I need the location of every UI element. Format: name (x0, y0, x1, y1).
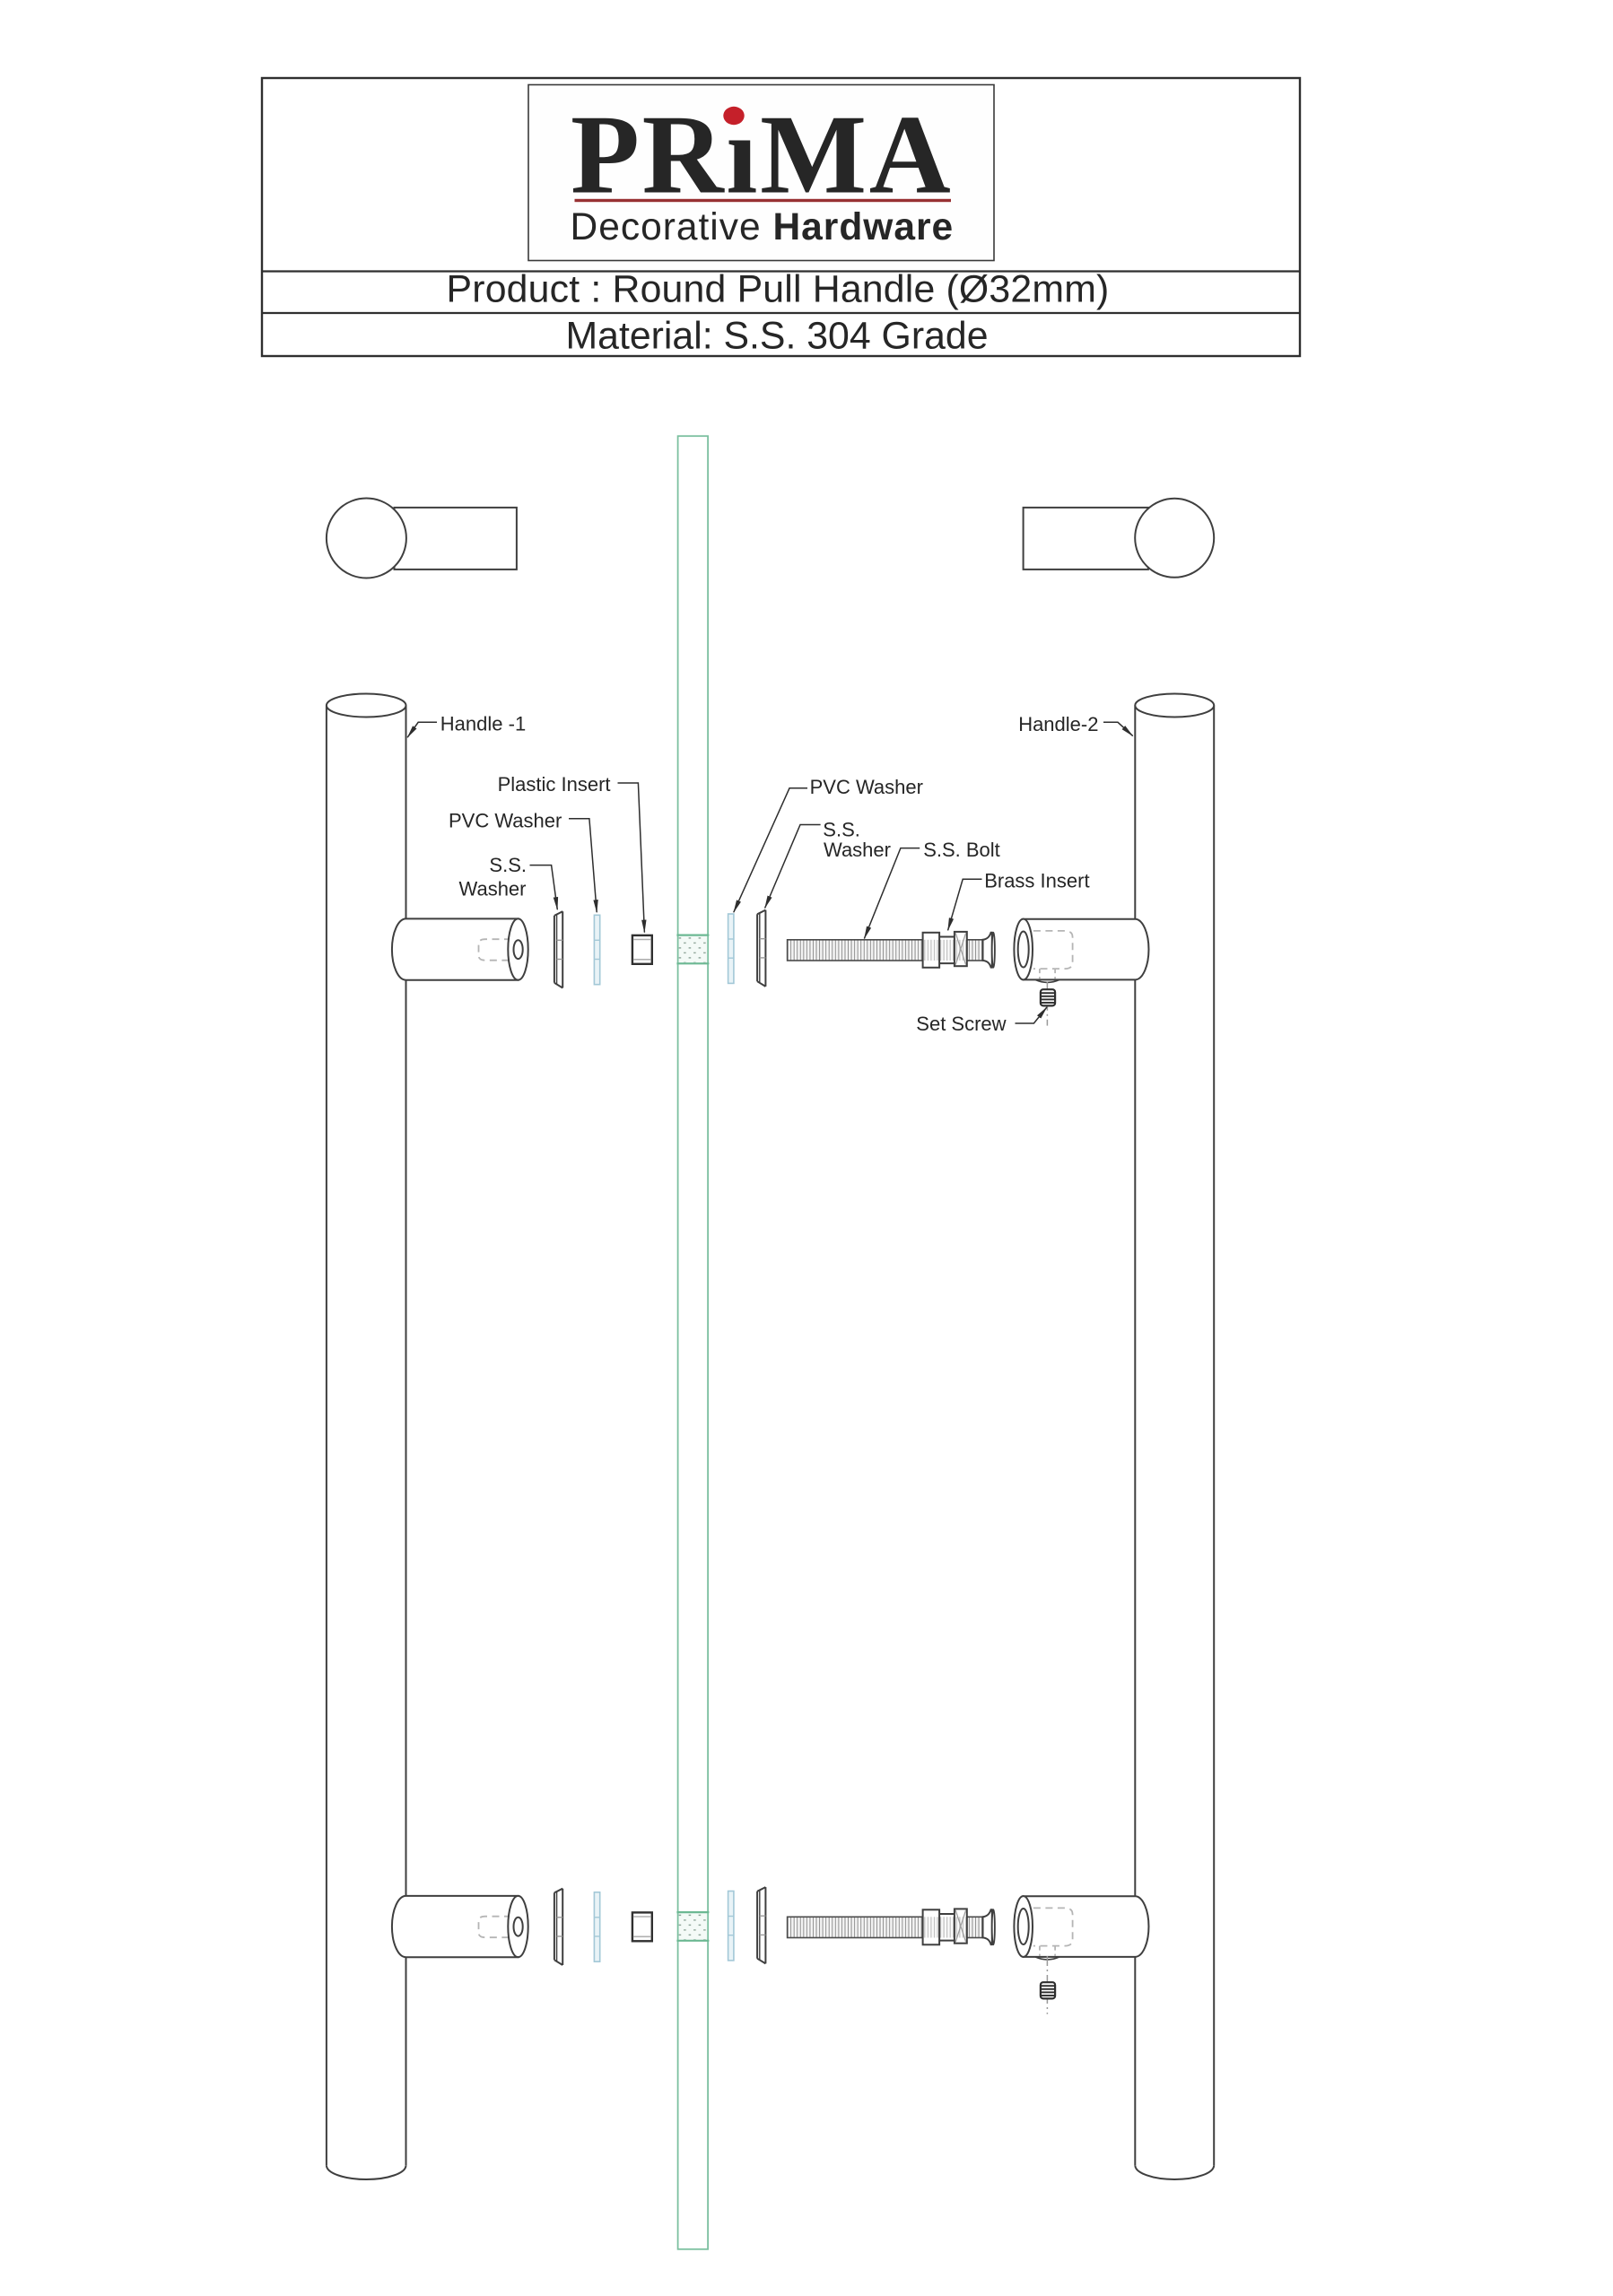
svg-text:S.S.: S.S. (823, 818, 860, 840)
svg-text:Decorative Hardware: Decorative Hardware (571, 206, 955, 248)
svg-text:Washer: Washer (459, 878, 527, 900)
svg-text:Brass Insert: Brass Insert (984, 870, 1089, 892)
svg-text:Product : Round Pull Handle (Ø: Product : Round Pull Handle (Ø32mm) (447, 268, 1110, 311)
svg-text:Handle-2: Handle-2 (1018, 713, 1098, 735)
svg-text:Material: S.S. 304 Grade: Material: S.S. 304 Grade (566, 315, 989, 358)
svg-text:PVC Washer: PVC Washer (449, 809, 562, 831)
svg-text:S.S.: S.S. (489, 854, 527, 876)
svg-text:PVC Washer: PVC Washer (810, 776, 923, 798)
svg-text:Handle -1: Handle -1 (440, 713, 526, 735)
svg-text:S.S. Bolt: S.S. Bolt (923, 839, 1000, 861)
svg-text:Set Screw: Set Screw (916, 1013, 1006, 1035)
svg-text:Plastic Insert: Plastic Insert (498, 773, 611, 796)
svg-text:Washer: Washer (824, 839, 891, 861)
svg-text:PRıMA: PRıMA (571, 93, 953, 218)
